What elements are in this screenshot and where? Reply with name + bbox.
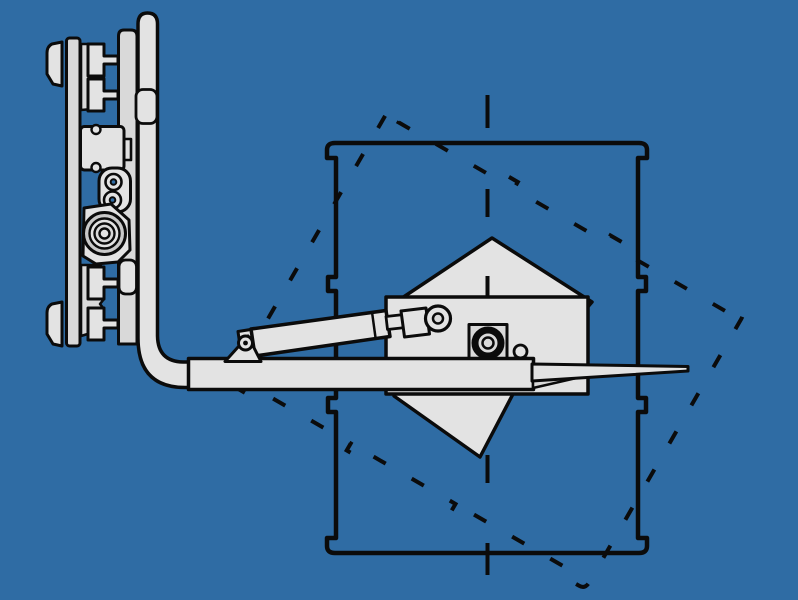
- junction-block: [81, 127, 125, 171]
- rod-eye-pin: [433, 314, 443, 324]
- chain-roller-hole: [111, 179, 117, 185]
- boss-tab-upper: [136, 90, 157, 124]
- diagram-canvas: [0, 0, 798, 600]
- upper-hook-wedge: [47, 42, 62, 86]
- grease-fitting: [514, 345, 527, 358]
- carriage-rail: [67, 38, 81, 346]
- anchor-pin-center: [243, 341, 248, 346]
- drum-rotator-diagram: [0, 0, 798, 600]
- boss-tab-lower: [119, 260, 137, 294]
- carriage-roller-hub: [100, 229, 110, 239]
- pivot-center: [483, 338, 494, 349]
- block-bolt: [92, 163, 101, 172]
- lower-hook-wedge: [47, 302, 62, 346]
- block-bolt: [92, 125, 101, 134]
- chain-roller-hole: [110, 197, 116, 203]
- fork-arm: [189, 359, 534, 390]
